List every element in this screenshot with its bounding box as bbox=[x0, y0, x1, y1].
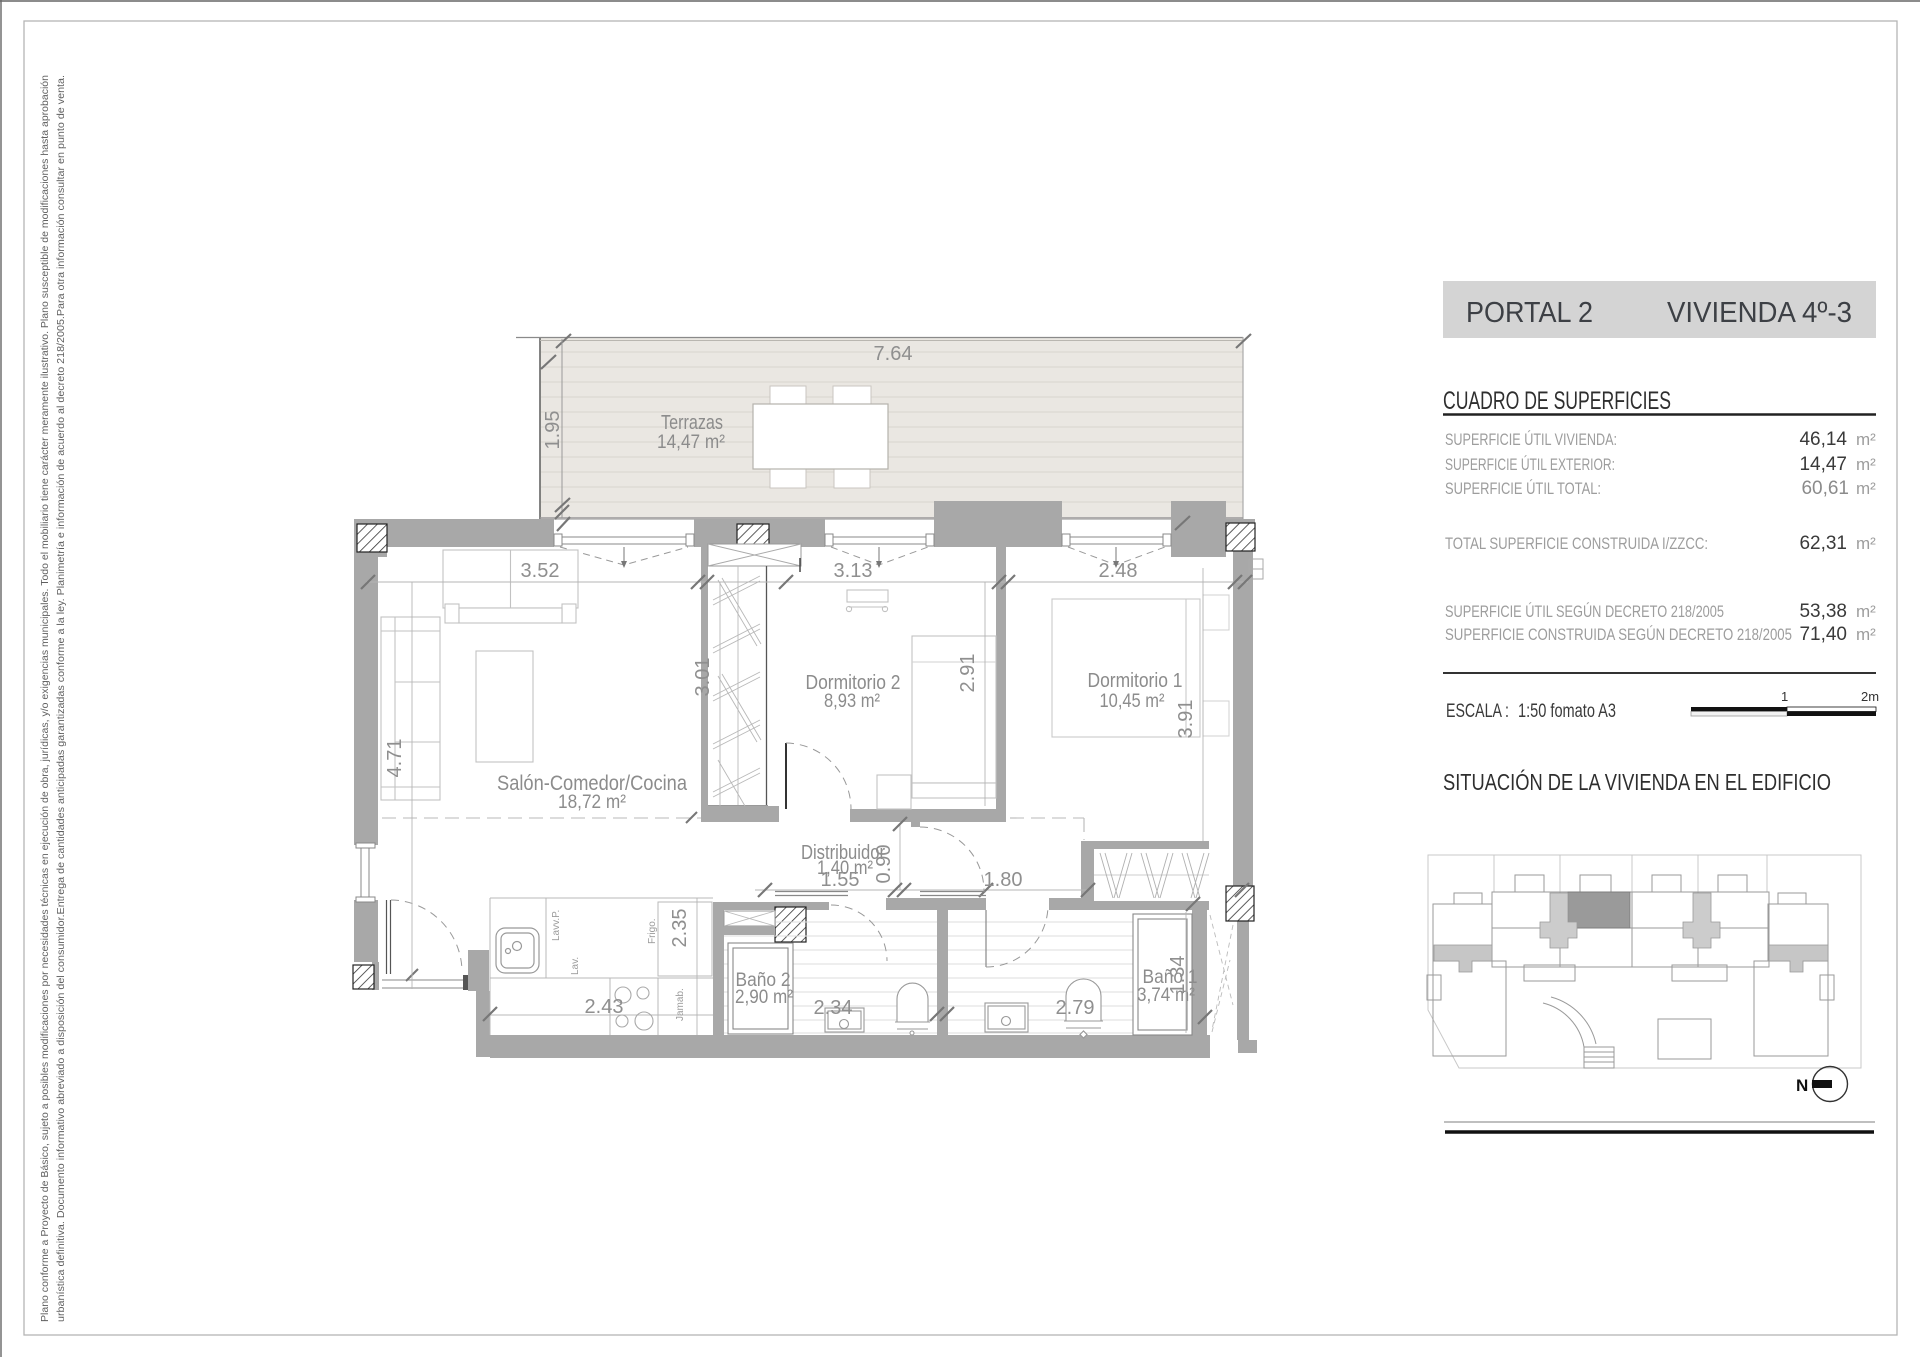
svg-text:TOTAL SUPERFICIE CONSTRUIDA I/: TOTAL SUPERFICIE CONSTRUIDA I/ZZCC: bbox=[1445, 534, 1708, 553]
svg-text:m²: m² bbox=[1856, 479, 1876, 498]
svg-text:SUPERFICIE ÚTIL SEGÚN DECRETO: SUPERFICIE ÚTIL SEGÚN DECRETO 218/2005 bbox=[1445, 602, 1724, 621]
svg-text:VIVIENDA 4º-3: VIVIENDA 4º-3 bbox=[1667, 297, 1852, 329]
svg-text:3.91: 3.91 bbox=[1175, 700, 1197, 739]
svg-text:62,31: 62,31 bbox=[1799, 533, 1847, 554]
svg-text:Jamab.: Jamab. bbox=[675, 988, 686, 1021]
svg-text:Lavv.P.: Lavv.P. bbox=[551, 910, 562, 941]
svg-text:PORTAL 2: PORTAL 2 bbox=[1466, 297, 1593, 329]
svg-text:18,72 m²: 18,72 m² bbox=[558, 792, 626, 813]
svg-text:2.79: 2.79 bbox=[1056, 997, 1095, 1019]
svg-text:2,90 m²: 2,90 m² bbox=[735, 987, 793, 1008]
svg-text:SUPERFICIE ÚTIL VIVIENDA:: SUPERFICIE ÚTIL VIVIENDA: bbox=[1445, 430, 1617, 449]
svg-text:SUPERFICIE ÚTIL EXTERIOR:: SUPERFICIE ÚTIL EXTERIOR: bbox=[1445, 455, 1615, 474]
svg-text:1:50 fomato A3: 1:50 fomato A3 bbox=[1518, 701, 1616, 722]
svg-text:CUADRO DE SUPERFICIES: CUADRO DE SUPERFICIES bbox=[1443, 387, 1671, 415]
svg-text:SITUACIÓN DE LA VIVIENDA EN EL: SITUACIÓN DE LA VIVIENDA EN EL EDIFICIO bbox=[1443, 769, 1831, 795]
svg-text:m²: m² bbox=[1856, 534, 1876, 553]
svg-text:SUPERFICIE CONSTRUIDA SEGÚN DE: SUPERFICIE CONSTRUIDA SEGÚN DECRETO 218/… bbox=[1445, 625, 1792, 644]
svg-text:8,93 m²: 8,93 m² bbox=[824, 691, 880, 712]
svg-text:71,40: 71,40 bbox=[1799, 624, 1847, 645]
svg-text:2.35: 2.35 bbox=[669, 909, 691, 948]
svg-text:m²: m² bbox=[1856, 455, 1876, 474]
svg-text:N: N bbox=[1796, 1076, 1808, 1095]
svg-text:m²: m² bbox=[1856, 602, 1876, 621]
svg-text:1.80: 1.80 bbox=[984, 869, 1023, 891]
svg-text:SUPERFICIE ÚTIL TOTAL:: SUPERFICIE ÚTIL TOTAL: bbox=[1445, 479, 1601, 498]
svg-text:urbanística definitiva. Docume: urbanística definitiva. Documento inform… bbox=[55, 75, 67, 1322]
svg-text:53,38: 53,38 bbox=[1799, 601, 1847, 622]
svg-text:Frigo.: Frigo. bbox=[647, 918, 658, 944]
svg-text:0.90: 0.90 bbox=[873, 845, 895, 884]
svg-text:2.48: 2.48 bbox=[1099, 560, 1138, 582]
svg-text:14,47 m²: 14,47 m² bbox=[657, 432, 725, 453]
svg-text:1: 1 bbox=[1781, 689, 1788, 704]
svg-text:1.34: 1.34 bbox=[1167, 956, 1189, 995]
svg-text:14,47: 14,47 bbox=[1799, 454, 1847, 475]
svg-text:2.34: 2.34 bbox=[814, 997, 853, 1019]
svg-text:2.43: 2.43 bbox=[585, 996, 624, 1018]
svg-text:m²: m² bbox=[1856, 430, 1876, 449]
svg-text:ESCALA :: ESCALA : bbox=[1446, 701, 1509, 722]
svg-text:Dormitorio 1: Dormitorio 1 bbox=[1088, 670, 1183, 692]
svg-text:2.91: 2.91 bbox=[957, 654, 979, 693]
svg-text:3.13: 3.13 bbox=[834, 560, 873, 582]
svg-text:3.52: 3.52 bbox=[521, 560, 560, 582]
svg-text:10,45 m²: 10,45 m² bbox=[1100, 691, 1165, 712]
svg-text:7.64: 7.64 bbox=[874, 343, 913, 365]
svg-text:3.01: 3.01 bbox=[692, 658, 714, 697]
svg-text:1.55: 1.55 bbox=[821, 869, 860, 891]
svg-text:46,14: 46,14 bbox=[1799, 429, 1847, 450]
svg-text:Lav.: Lav. bbox=[570, 957, 581, 975]
svg-text:2m: 2m bbox=[1861, 689, 1879, 704]
svg-text:60,61: 60,61 bbox=[1801, 478, 1849, 499]
svg-text:1.95: 1.95 bbox=[542, 411, 564, 450]
svg-text:4.71: 4.71 bbox=[384, 739, 406, 778]
svg-text:Terrazas: Terrazas bbox=[661, 412, 723, 434]
svg-text:Plano conforme a Proyecto de B: Plano conforme a Proyecto de Básico, suj… bbox=[39, 75, 51, 1322]
svg-text:m²: m² bbox=[1856, 625, 1876, 644]
